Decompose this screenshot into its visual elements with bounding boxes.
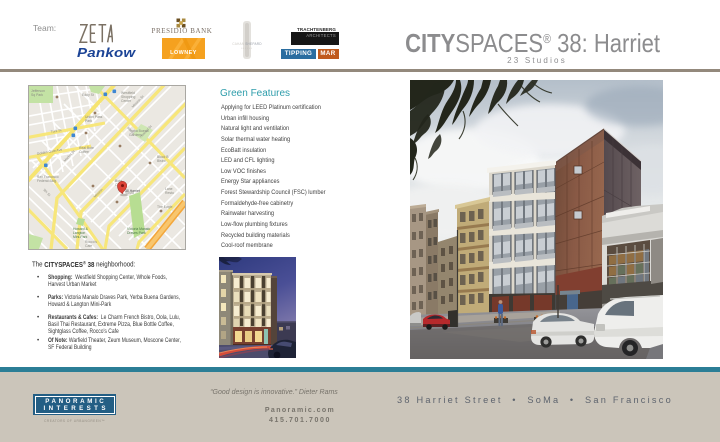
svg-text:Cafe: Cafe <box>85 244 92 248</box>
svg-text:The Eagle: The Eagle <box>157 205 173 209</box>
svg-text:Resto: Resto <box>165 191 174 195</box>
svg-text:Sq Park: Sq Park <box>31 93 43 97</box>
svg-text:Park: Park <box>85 119 92 123</box>
svg-text:Bistro: Bistro <box>157 159 166 163</box>
svg-text:Eddy St: Eddy St <box>82 93 94 97</box>
svg-text:Draves Park: Draves Park <box>127 231 146 235</box>
svg-text:Federal Bldg: Federal Bldg <box>37 179 56 183</box>
svg-text:Mini-Park: Mini-Park <box>73 235 88 239</box>
svg-text:Center: Center <box>121 99 132 103</box>
svg-text:Coffee: Coffee <box>79 150 89 154</box>
svg-text:38 Harriet: 38 Harriet <box>125 189 140 193</box>
